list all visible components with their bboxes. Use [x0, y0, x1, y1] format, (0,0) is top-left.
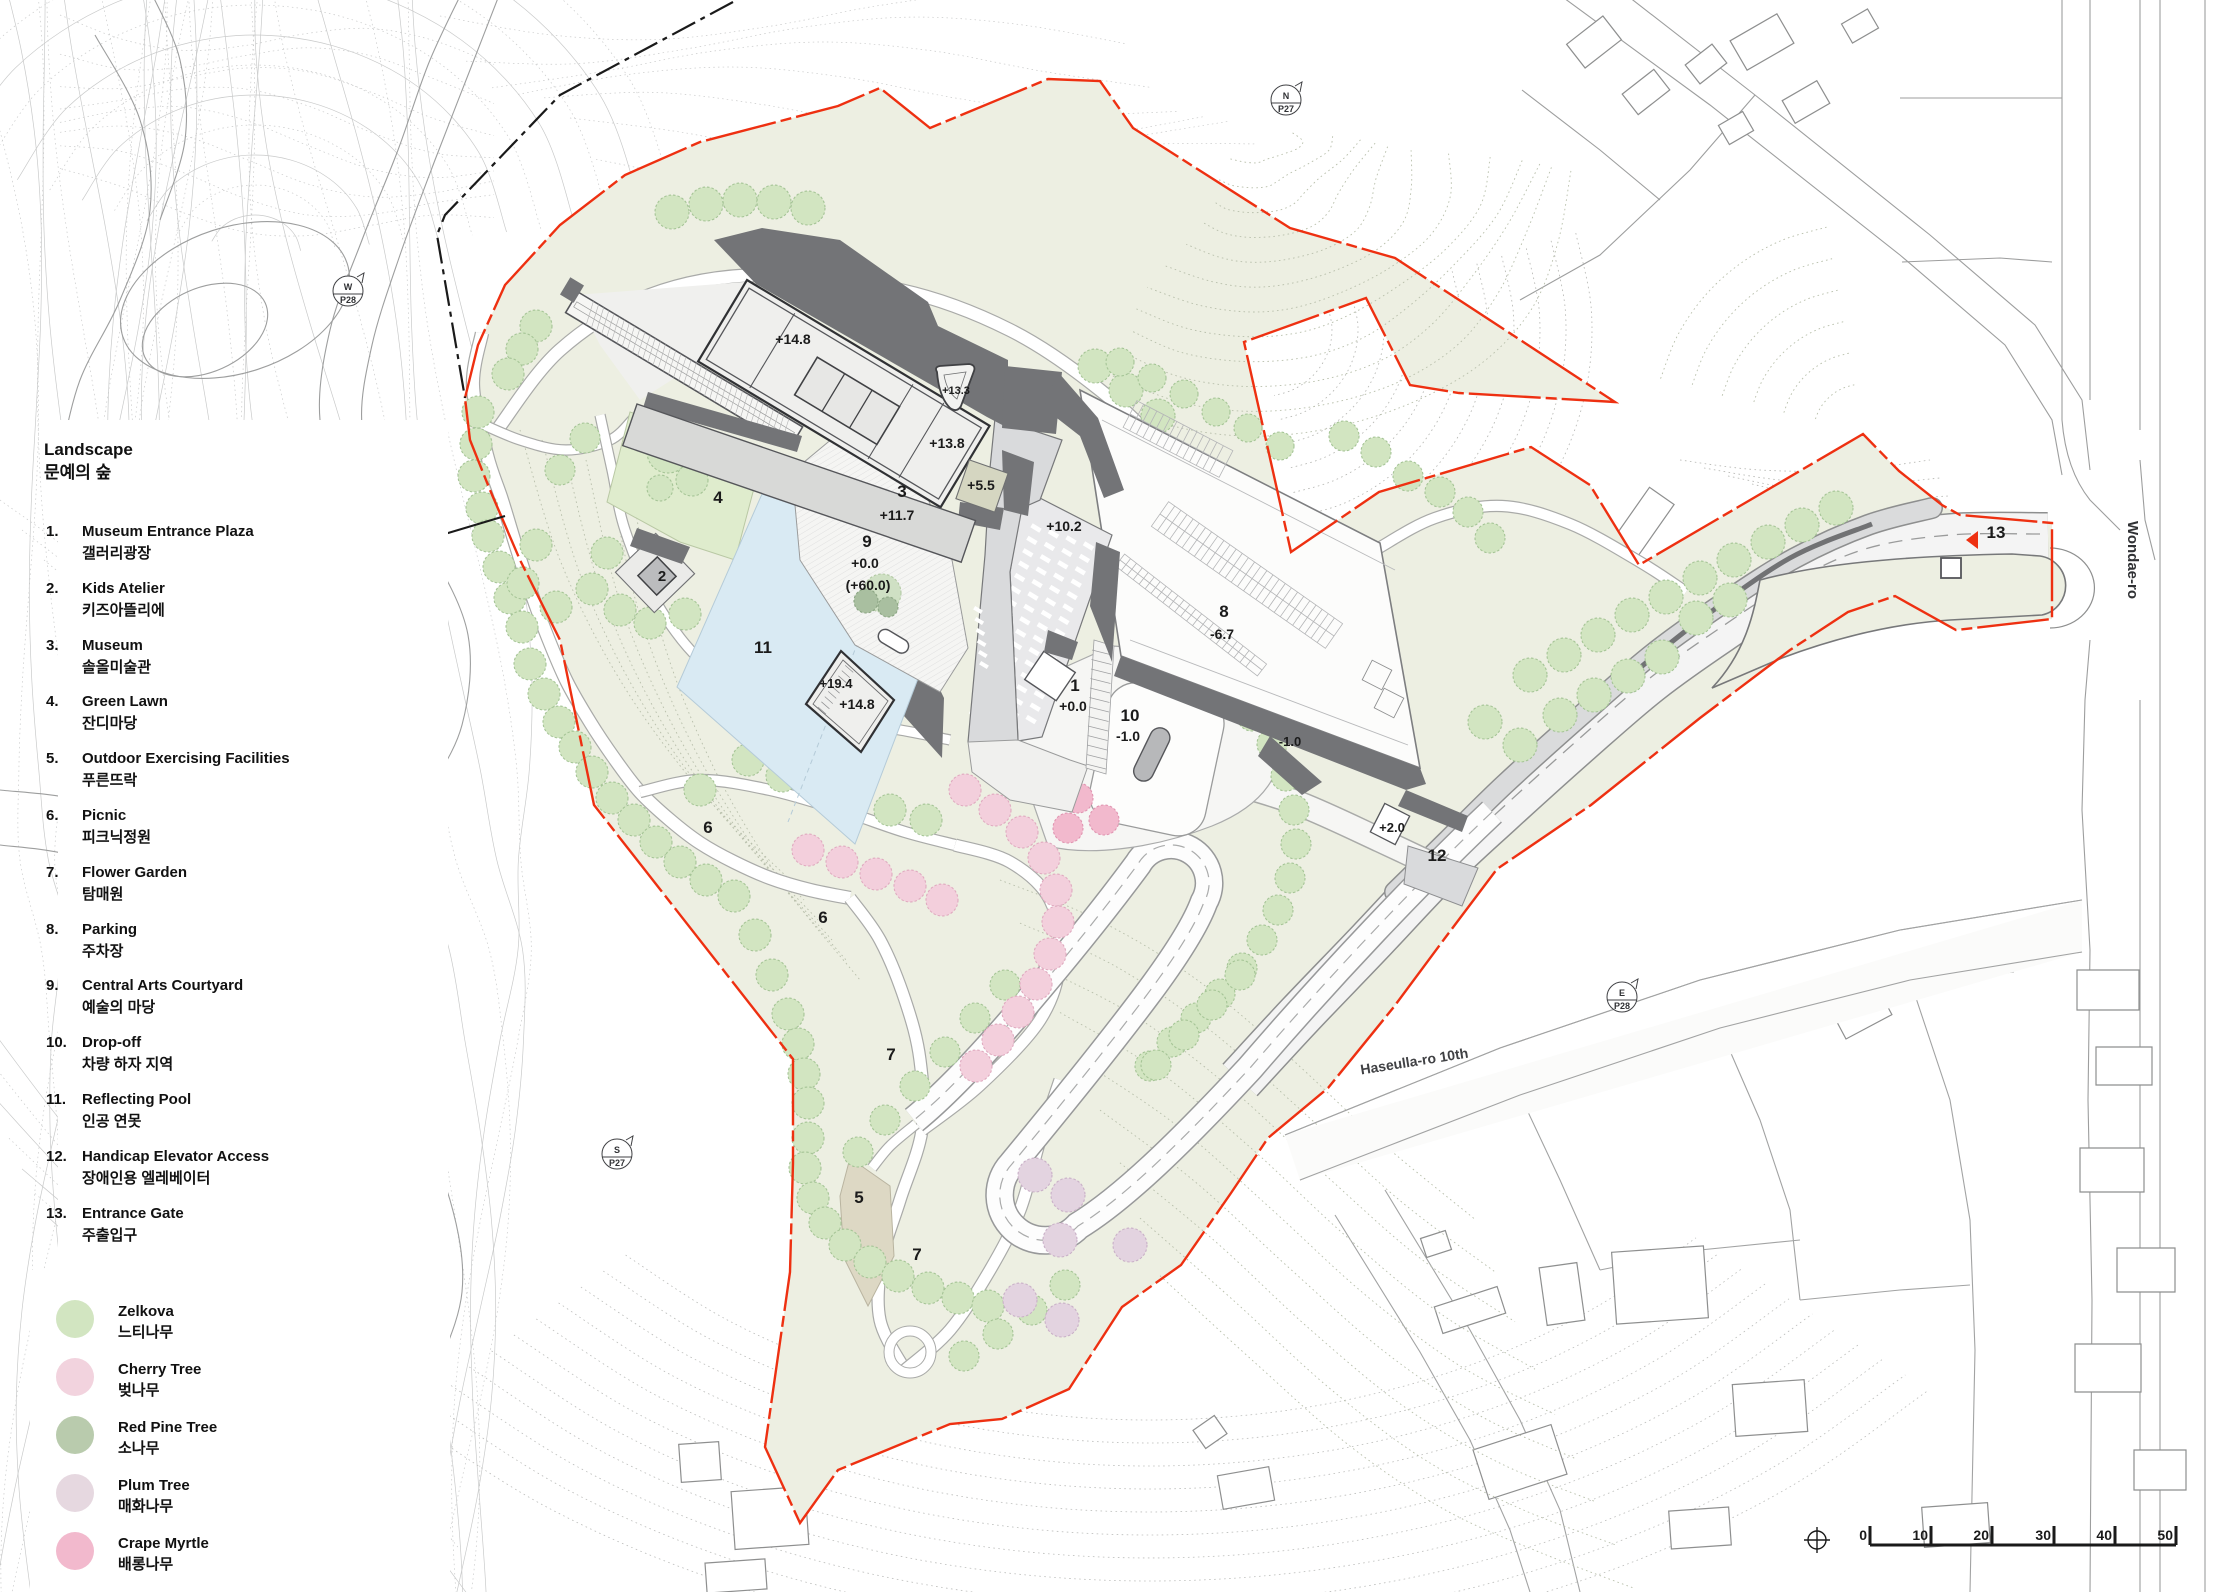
svg-text:Drop-off: Drop-off [82, 1034, 142, 1051]
svg-text:Landscape: Landscape [44, 440, 133, 459]
svg-text:+5.5: +5.5 [967, 477, 995, 493]
svg-text:20: 20 [1973, 1527, 1989, 1543]
svg-text:+19.4: +19.4 [820, 676, 854, 691]
svg-text:-1.0: -1.0 [1279, 734, 1301, 749]
svg-text:7.: 7. [46, 864, 59, 881]
svg-text:+13.8: +13.8 [929, 435, 965, 451]
svg-text:8: 8 [1219, 602, 1228, 621]
svg-text:Outdoor Exercising Facilities: Outdoor Exercising Facilities [82, 750, 290, 767]
svg-text:소나무: 소나무 [118, 1440, 160, 1457]
svg-text:4: 4 [713, 488, 723, 507]
svg-text:5: 5 [854, 1188, 863, 1207]
svg-text:13.: 13. [46, 1205, 67, 1222]
svg-text:배롱나무: 배롱나무 [118, 1556, 173, 1573]
svg-text:3: 3 [897, 482, 906, 501]
svg-text:Kids Atelier: Kids Atelier [82, 580, 165, 597]
svg-text:W: W [344, 282, 353, 292]
svg-text:10: 10 [1912, 1527, 1928, 1543]
svg-text:13: 13 [1987, 523, 2006, 542]
svg-text:매화나무: 매화나무 [118, 1498, 173, 1515]
svg-text:10: 10 [1121, 706, 1140, 725]
svg-text:Picnic: Picnic [82, 807, 126, 824]
svg-text:10.: 10. [46, 1034, 67, 1051]
svg-text:Handicap Elevator Access: Handicap Elevator Access [82, 1148, 269, 1165]
svg-text:12.: 12. [46, 1148, 67, 1165]
svg-text:피크닉정원: 피크닉정원 [82, 828, 151, 846]
svg-text:7: 7 [886, 1045, 895, 1064]
svg-text:N: N [1283, 91, 1290, 101]
svg-text:+14.8: +14.8 [775, 331, 811, 347]
svg-text:-1.0: -1.0 [1116, 728, 1140, 744]
svg-text:P28: P28 [1614, 1001, 1630, 1011]
svg-text:6: 6 [818, 908, 827, 927]
svg-text:Entrance Gate: Entrance Gate [82, 1205, 184, 1222]
svg-text:11: 11 [754, 638, 772, 657]
svg-text:벚나무: 벚나무 [118, 1381, 160, 1399]
svg-text:Green Lawn: Green Lawn [82, 693, 168, 710]
svg-text:9.: 9. [46, 977, 59, 994]
svg-text:문예의 숲: 문예의 숲 [44, 463, 112, 482]
svg-text:Museum Entrance Plaza: Museum Entrance Plaza [82, 523, 254, 540]
svg-text:-6.7: -6.7 [1210, 626, 1234, 642]
svg-text:키즈아뜰리에: 키즈아뜰리에 [82, 602, 165, 619]
svg-text:탐매원: 탐매원 [82, 885, 123, 903]
svg-text:푸른뜨락: 푸른뜨락 [82, 771, 137, 789]
svg-text:예술의 마당: 예술의 마당 [82, 998, 155, 1016]
svg-text:5.: 5. [46, 750, 59, 767]
svg-text:9: 9 [862, 532, 871, 551]
svg-text:6: 6 [703, 818, 712, 837]
svg-text:7: 7 [912, 1245, 921, 1264]
svg-text:장애인용 엘레베이터: 장애인용 엘레베이터 [82, 1169, 210, 1187]
svg-text:8.: 8. [46, 921, 59, 938]
svg-text:인공 연못: 인공 연못 [82, 1112, 142, 1130]
svg-text:+2.0: +2.0 [1379, 820, 1405, 835]
svg-text:Wondae-ro: Wondae-ro [2124, 521, 2141, 599]
svg-text:S: S [614, 1145, 620, 1155]
svg-text:갤러리광장: 갤러리광장 [82, 544, 151, 562]
svg-text:Parking: Parking [82, 921, 137, 938]
svg-text:+11.7: +11.7 [880, 507, 915, 523]
svg-text:P27: P27 [1278, 104, 1294, 114]
svg-text:+10.2: +10.2 [1046, 518, 1082, 534]
svg-text:40: 40 [2096, 1527, 2112, 1543]
svg-text:0: 0 [1859, 1527, 1867, 1543]
svg-text:Plum Tree: Plum Tree [118, 1477, 190, 1494]
svg-text:4.: 4. [46, 693, 59, 710]
svg-text:잔디마당: 잔디마당 [82, 714, 137, 732]
svg-text:주차장: 주차장 [82, 942, 124, 960]
svg-text:P28: P28 [340, 295, 356, 305]
svg-text:11.: 11. [46, 1091, 66, 1108]
svg-text:Central Arts Courtyard: Central Arts Courtyard [82, 977, 243, 994]
svg-text:3.: 3. [46, 637, 59, 654]
svg-text:6.: 6. [46, 807, 59, 824]
svg-text:Cherry Tree: Cherry Tree [118, 1361, 201, 1378]
svg-text:Red Pine Tree: Red Pine Tree [118, 1419, 217, 1436]
svg-text:2.: 2. [46, 580, 59, 597]
svg-text:12: 12 [1428, 846, 1447, 865]
svg-text:50: 50 [2157, 1527, 2173, 1543]
svg-text:Museum: Museum [82, 637, 143, 654]
svg-text:느티나무: 느티나무 [118, 1324, 173, 1341]
svg-text:+0.0: +0.0 [1059, 698, 1087, 714]
svg-text:솔올미술관: 솔올미술관 [82, 659, 151, 676]
svg-text:E: E [1619, 988, 1625, 998]
svg-text:+14.8: +14.8 [839, 696, 875, 712]
svg-text:Reflecting Pool: Reflecting Pool [82, 1091, 191, 1108]
svg-text:2: 2 [658, 568, 666, 585]
svg-text:Crape Myrtle: Crape Myrtle [118, 1535, 209, 1552]
svg-text:차량 하자 지역: 차량 하자 지역 [82, 1055, 173, 1073]
svg-text:주출입구: 주출입구 [82, 1227, 137, 1244]
svg-text:Flower Garden: Flower Garden [82, 864, 187, 881]
svg-text:1.: 1. [46, 523, 59, 540]
svg-text:P27: P27 [609, 1158, 625, 1168]
svg-text:+0.0: +0.0 [851, 555, 879, 571]
svg-text:+13.3: +13.3 [942, 385, 970, 397]
svg-text:1: 1 [1070, 676, 1079, 695]
svg-text:(+60.0): (+60.0) [846, 577, 891, 593]
svg-text:Zelkova: Zelkova [118, 1303, 175, 1320]
svg-text:30: 30 [2035, 1527, 2051, 1543]
